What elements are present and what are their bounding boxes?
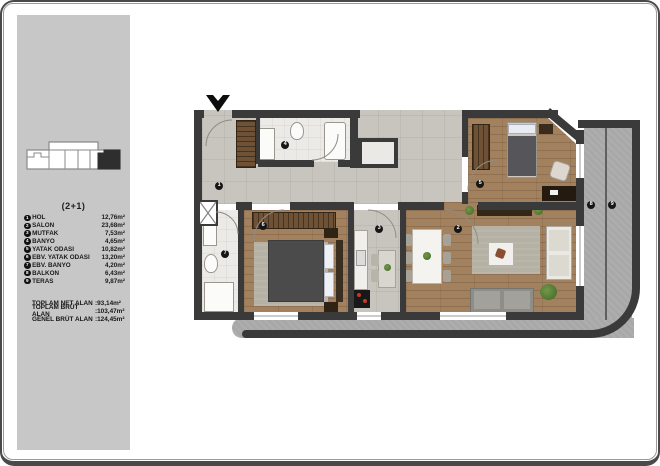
toilet xyxy=(290,122,304,140)
chair xyxy=(371,270,379,282)
vanity-sink xyxy=(259,128,275,160)
nightstand xyxy=(539,124,553,134)
wall xyxy=(298,312,357,320)
wall xyxy=(462,110,468,157)
shower xyxy=(204,282,234,312)
wall xyxy=(348,210,354,314)
double-bed-blanket xyxy=(268,240,324,302)
floor-plan: 1 2 3 4 5 6 7 8 9 xyxy=(2,2,658,461)
window xyxy=(440,312,506,320)
wall xyxy=(258,160,314,167)
wall xyxy=(236,202,252,210)
pillow xyxy=(324,244,334,269)
bathroom-door-arc xyxy=(312,134,338,160)
entrance-arrow-icon xyxy=(203,95,233,115)
wall xyxy=(576,130,584,144)
sofa-cushion xyxy=(549,255,569,276)
ensuite-door-arc xyxy=(216,212,238,234)
wall xyxy=(462,192,468,204)
sofa-cushion xyxy=(504,291,530,309)
wall xyxy=(576,204,584,226)
wall xyxy=(381,312,440,320)
wall xyxy=(232,110,360,118)
floorplan-sheet: (2+1) 1HOL12,76m² 2SALON23,68m² 3MUTFAK7… xyxy=(0,0,660,466)
pillow xyxy=(508,124,536,134)
stove-burner xyxy=(363,299,367,303)
parapet-wall xyxy=(578,120,640,128)
window xyxy=(254,312,298,320)
parapet-wall xyxy=(242,330,578,338)
wall xyxy=(400,202,406,314)
window xyxy=(357,312,381,320)
wall xyxy=(576,178,584,204)
chair xyxy=(371,254,379,266)
plant xyxy=(540,284,557,300)
wall xyxy=(256,118,260,164)
nightstand xyxy=(324,302,338,312)
entrance-door-arc xyxy=(206,120,232,146)
wall xyxy=(478,202,582,210)
pillow xyxy=(324,272,334,297)
bed-blanket xyxy=(508,136,536,176)
desk xyxy=(542,186,576,201)
wall xyxy=(338,160,358,167)
table-centerpiece xyxy=(423,252,431,260)
shaft xyxy=(198,200,218,226)
wall xyxy=(462,110,558,118)
ensuite-toilet xyxy=(204,254,218,273)
sofa-cushion xyxy=(474,291,500,309)
wall xyxy=(238,210,244,314)
kitchen-door-arc xyxy=(368,210,396,238)
parapet-wall xyxy=(632,122,640,280)
closet xyxy=(358,138,398,168)
stove xyxy=(354,290,370,308)
wall xyxy=(506,312,584,320)
wall xyxy=(290,202,354,210)
chair xyxy=(443,270,451,282)
desk-item xyxy=(550,190,558,195)
nightstand xyxy=(324,228,338,238)
plant xyxy=(384,264,391,271)
stove-burner xyxy=(357,293,361,297)
wall xyxy=(194,312,254,320)
headboard xyxy=(336,240,343,302)
entry-wardrobe xyxy=(236,120,256,168)
sofa-cushion xyxy=(549,230,569,251)
chair xyxy=(443,252,451,264)
window xyxy=(576,144,584,178)
kitchen-sink xyxy=(356,250,366,266)
